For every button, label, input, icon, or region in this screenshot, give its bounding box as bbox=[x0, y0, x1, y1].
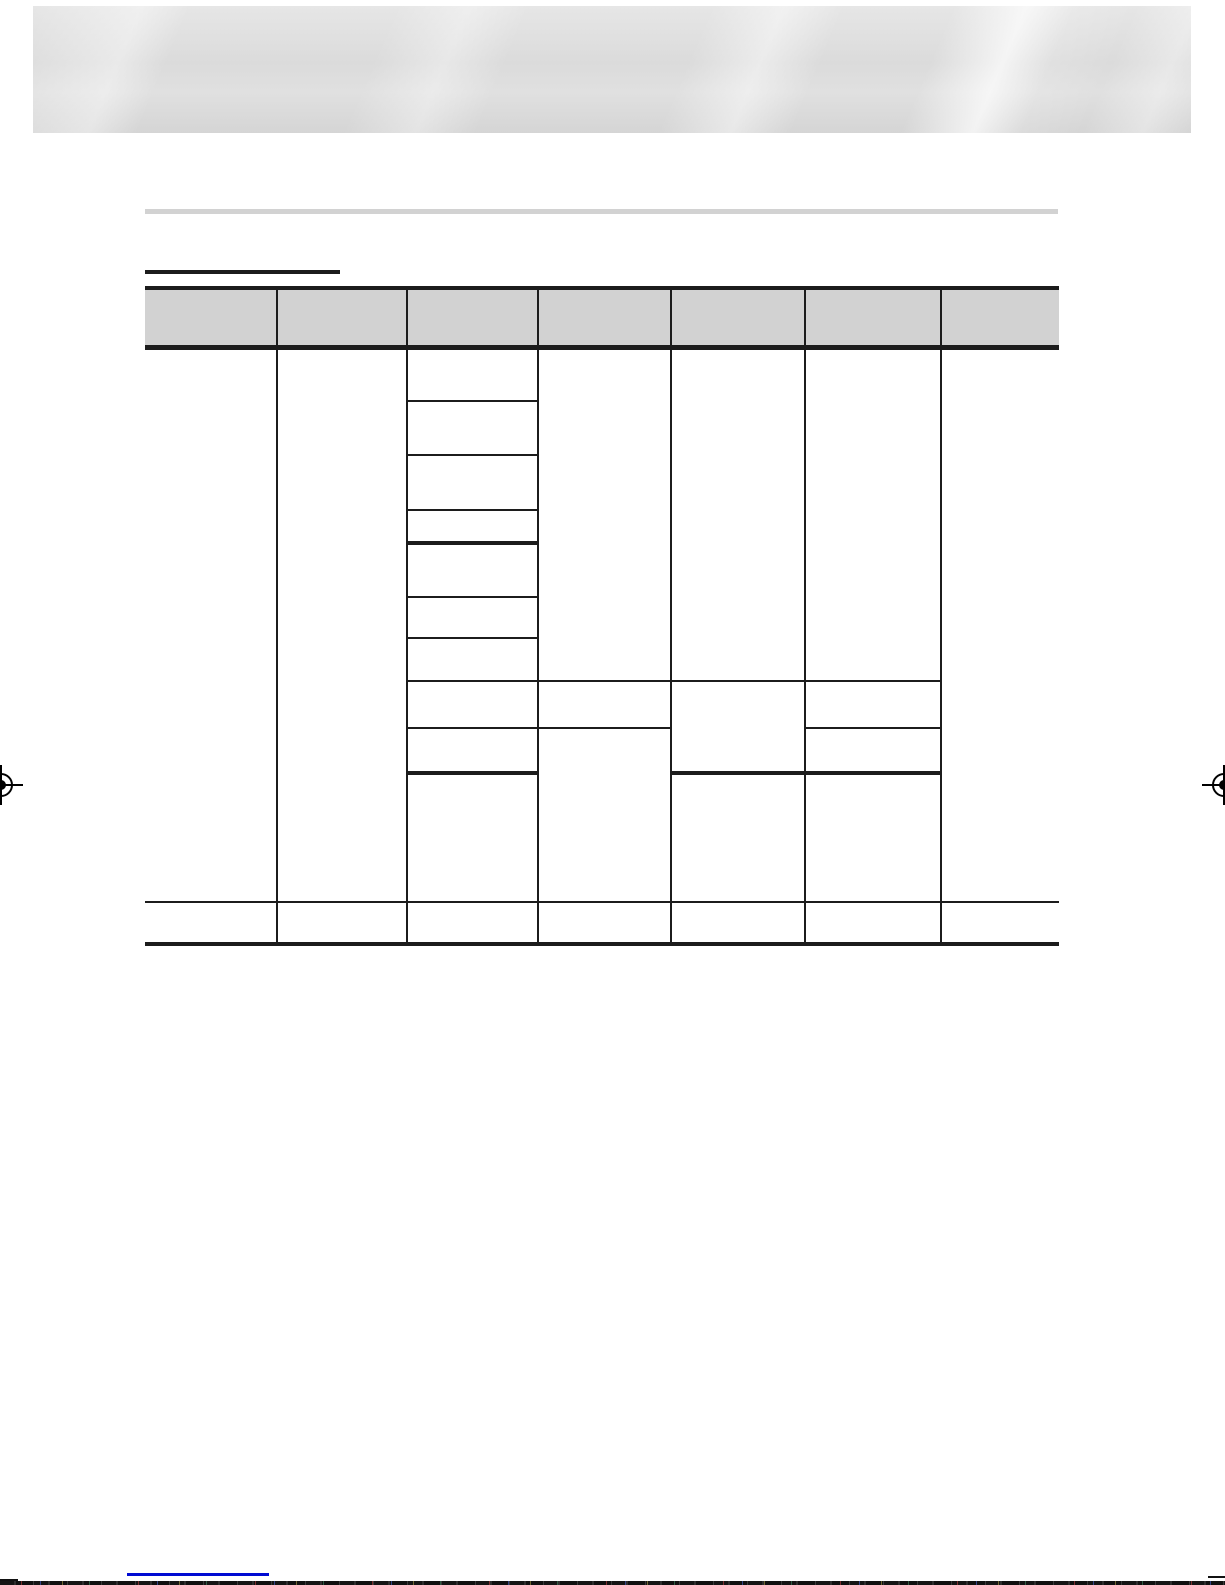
table-cell bbox=[671, 348, 805, 681]
table-cell bbox=[407, 348, 538, 401]
table-cell bbox=[805, 773, 941, 902]
table-header-cell bbox=[145, 288, 277, 348]
table-cell bbox=[407, 597, 538, 638]
table-cell bbox=[671, 681, 805, 773]
table-header-cell bbox=[941, 288, 1059, 348]
bottom-edge-tick-right bbox=[1208, 1576, 1225, 1578]
table-cell bbox=[407, 455, 538, 510]
table-cell bbox=[277, 348, 407, 902]
table-cell bbox=[407, 510, 538, 543]
registration-mark-icon bbox=[1202, 763, 1225, 807]
footer-link-underline[interactable] bbox=[127, 1573, 269, 1576]
table-cell bbox=[407, 543, 538, 597]
section-title-rule bbox=[145, 270, 340, 274]
table-cell bbox=[538, 348, 671, 681]
table-header-cell bbox=[407, 288, 538, 348]
registration-mark-icon bbox=[0, 763, 23, 807]
bottom-scan-noise-strip bbox=[0, 1581, 1225, 1585]
table-cell bbox=[941, 348, 1059, 902]
specifications-table bbox=[145, 286, 1059, 946]
table-cell bbox=[407, 902, 538, 944]
document-page bbox=[0, 0, 1225, 1585]
table-cell bbox=[805, 902, 941, 944]
table-cell bbox=[538, 681, 671, 728]
table-cell bbox=[145, 348, 277, 902]
table-header-cell bbox=[538, 288, 671, 348]
section-gray-bar bbox=[145, 209, 1058, 214]
table-cell bbox=[277, 902, 407, 944]
table-header-cell bbox=[277, 288, 407, 348]
table-cell bbox=[805, 348, 941, 681]
table-cell bbox=[407, 773, 538, 902]
table-cell bbox=[538, 728, 671, 902]
table-header-cell bbox=[671, 288, 805, 348]
table-cell bbox=[941, 902, 1059, 944]
table-cell bbox=[145, 902, 277, 944]
table-cell bbox=[538, 902, 671, 944]
table-cell bbox=[805, 728, 941, 773]
top-gradient-banner bbox=[33, 6, 1191, 133]
table-cell bbox=[671, 902, 805, 944]
table-cell bbox=[805, 681, 941, 728]
table-cell bbox=[407, 401, 538, 455]
table-cell bbox=[407, 681, 538, 728]
table-cell bbox=[407, 638, 538, 681]
table-cell bbox=[671, 773, 805, 902]
table-cell bbox=[407, 728, 538, 773]
table-header-cell bbox=[805, 288, 941, 348]
